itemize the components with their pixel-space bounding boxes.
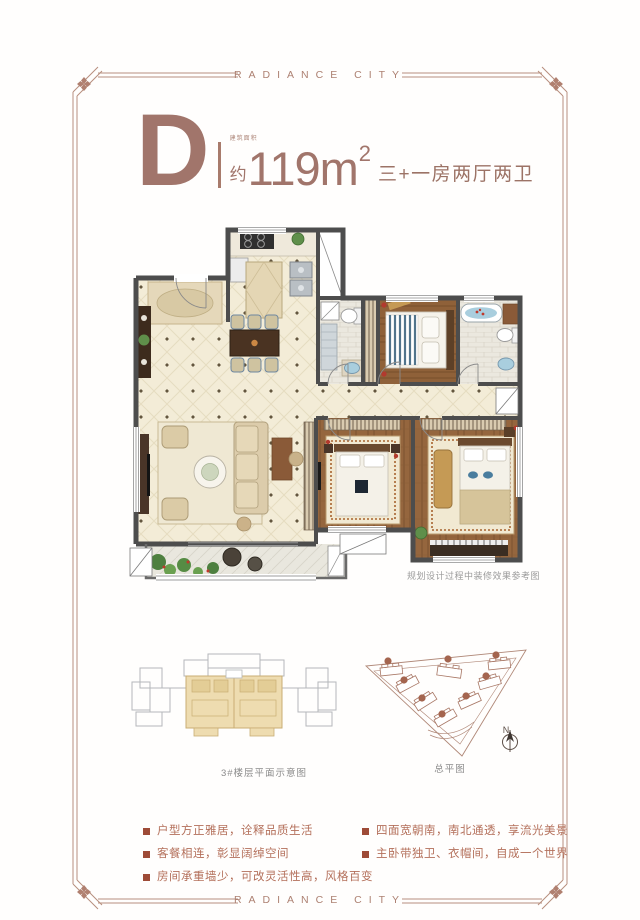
- feature-text: 主卧带独卫、衣帽间，自成一个世界: [376, 845, 568, 864]
- unit-title: D 建筑面积 约 119m 2 三+一房两厅两卫: [136, 110, 534, 192]
- site-buildings: [380, 657, 511, 727]
- bullet-square-icon: [362, 828, 369, 835]
- bullet-square-icon: [143, 851, 150, 858]
- floor-plan-graphic: [128, 222, 536, 594]
- features-left-column: 户型方正雅居，诠释品质生活 客餐相连，彰显阔绰空间 房间承重墙少，可改灵活性高，…: [143, 822, 373, 891]
- feature-text: 房间承重墙少，可改灵活性高，风格百变: [157, 868, 373, 887]
- bullet-square-icon: [143, 828, 150, 835]
- dining-set: [230, 315, 279, 372]
- plan-caption: 规划设计过程中装修效果参考图: [400, 569, 540, 582]
- title-divider: [218, 142, 221, 188]
- highlighted-units: [186, 670, 282, 736]
- feature-item: 四面宽朝南，南北通透，享流光美景: [362, 822, 568, 845]
- feature-item: 房间承重墙少，可改灵活性高，风格百变: [143, 868, 373, 891]
- layout-description: 三+一房两厅两卫: [378, 159, 534, 186]
- entry-rug: [148, 282, 222, 324]
- north-label: N: [496, 725, 516, 735]
- feature-item: 客餐相连，彰显阔绰空间: [143, 845, 373, 868]
- area-value: 119m: [248, 150, 358, 189]
- feature-item: 主卧带独卫、衣帽间，自成一个世界: [362, 845, 568, 868]
- features-right-column: 四面宽朝南，南北通透，享流光美景 主卧带独卫、衣帽间，自成一个世界: [362, 822, 568, 868]
- area-group: 建筑面积 约 119m 2: [230, 133, 371, 189]
- site-plan-label: 总平图: [400, 761, 500, 775]
- master-closet: [363, 298, 378, 384]
- area-approx: 约: [230, 160, 247, 185]
- feature-item: 户型方正雅居，诠释品质生活: [143, 822, 373, 845]
- area-superscript: 2: [359, 143, 371, 165]
- feature-text: 四面宽朝南，南北通透，享流光美景: [376, 822, 568, 841]
- brand-title-bottom: RADIANCE CITY: [0, 894, 640, 906]
- site-plan: [362, 634, 537, 760]
- building-diagram: [128, 642, 340, 760]
- feature-text: 客餐相连，彰显阔绰空间: [157, 845, 289, 864]
- area-note: 建筑面积: [230, 133, 371, 142]
- brand-title-top: RADIANCE CITY: [0, 69, 640, 81]
- brochure-page: RADIANCE CITY RADIANCE CITY D 建筑面积 约 119…: [0, 0, 640, 920]
- bullet-square-icon: [362, 851, 369, 858]
- bullet-square-icon: [143, 874, 150, 881]
- unit-letter: D: [136, 110, 208, 192]
- building-diagram-label: 3#楼层平面示意图: [159, 765, 369, 779]
- sideboard: [138, 306, 151, 378]
- balcony-floor: [146, 544, 346, 578]
- feature-text: 户型方正雅居，诠释品质生活: [157, 822, 313, 841]
